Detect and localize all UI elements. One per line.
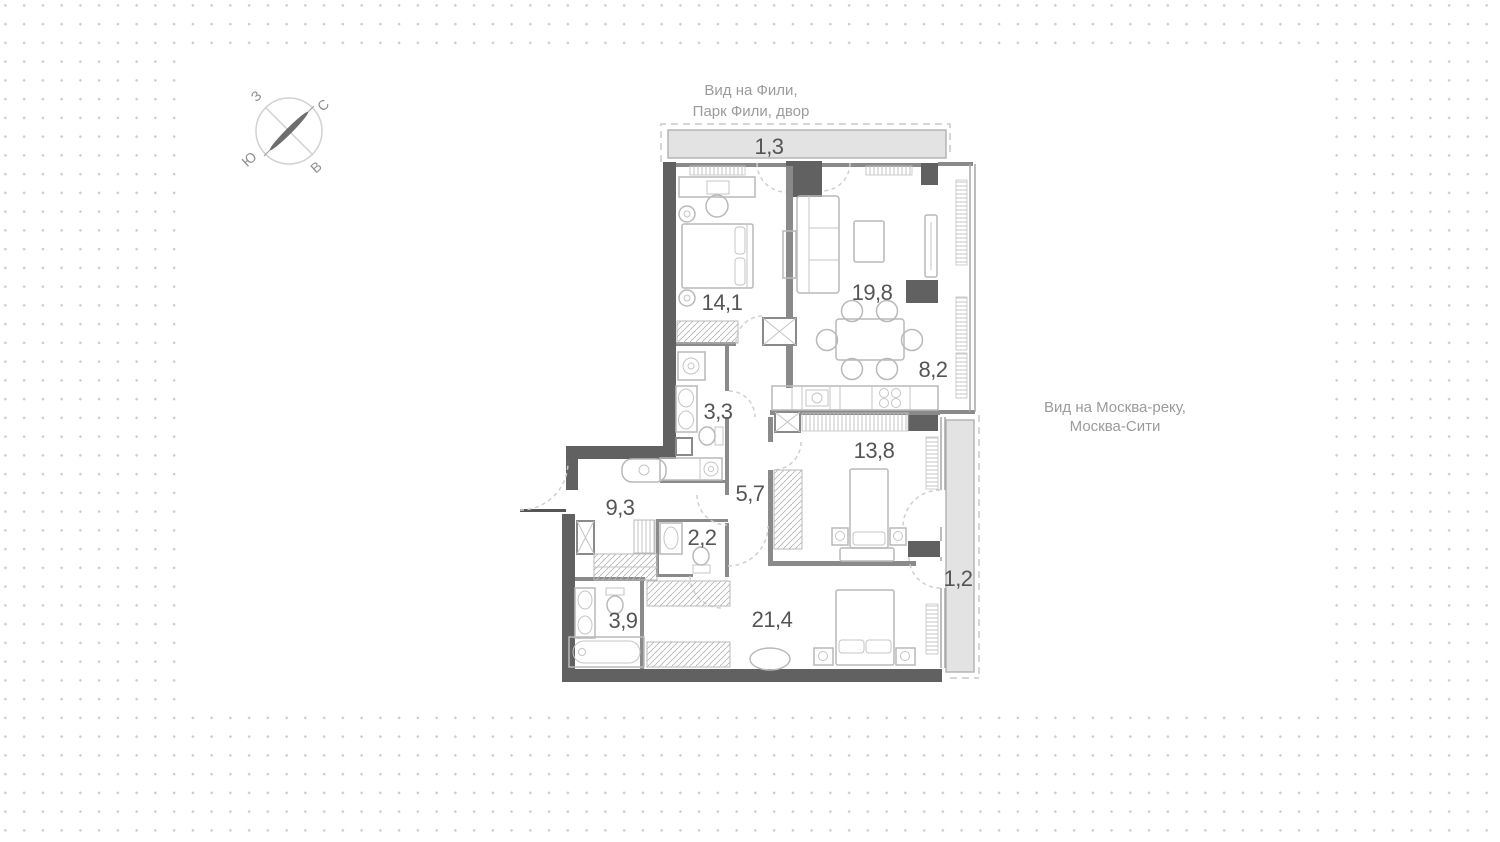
view-caption-top-line2: Парк Фили, двор xyxy=(693,103,810,120)
room-label-hallway: 9,3 xyxy=(605,495,634,520)
room-label-bathroom-2: 3,9 xyxy=(608,608,637,633)
balcony-right xyxy=(946,415,979,678)
room-label-wc: 2,2 xyxy=(687,525,716,550)
entry-door-leaf xyxy=(520,509,566,512)
balcony-right-slab xyxy=(946,420,974,672)
fixtures-laundry-niche xyxy=(660,458,722,480)
floor-plan-canvas: 1,3 14,1 19,8 8,2 3,3 13,8 5,7 9,3 2,2 3… xyxy=(0,0,1500,842)
room-label-bedroom-1: 14,1 xyxy=(702,290,743,315)
room-label-bedroom-2: 13,8 xyxy=(854,438,895,463)
compass-label-south: Ю xyxy=(238,148,259,169)
compass-label-east: В xyxy=(307,158,325,176)
furniture-bedroom-2 xyxy=(774,469,906,561)
compass-label-north: С xyxy=(314,96,332,115)
view-caption-top-line1: Вид на Фили, xyxy=(704,82,797,99)
room-label-living-room: 19,8 xyxy=(852,280,893,305)
compass-icon: З С Ю В xyxy=(238,87,332,176)
room-label-corridor: 5,7 xyxy=(735,481,764,506)
furniture-living-kitchen xyxy=(772,196,938,431)
room-label-balcony-top: 1,3 xyxy=(754,134,783,159)
room-label-kitchen-zone: 8,2 xyxy=(918,357,947,382)
room-label-bedroom-3: 21,4 xyxy=(752,607,793,632)
room-label-balcony-right: 1,2 xyxy=(943,566,972,591)
balcony-top xyxy=(661,124,950,162)
view-caption-right-line1: Вид на Москва-реку, xyxy=(1044,399,1186,416)
entry-door-arc xyxy=(520,462,568,510)
view-caption-right-line2: Москва-Сити xyxy=(1070,418,1161,435)
room-label-bathroom-1: 3,3 xyxy=(703,399,732,424)
furniture-bedroom-1 xyxy=(677,177,755,343)
balcony-top-slab xyxy=(668,130,946,158)
compass-label-west: З xyxy=(248,87,265,105)
